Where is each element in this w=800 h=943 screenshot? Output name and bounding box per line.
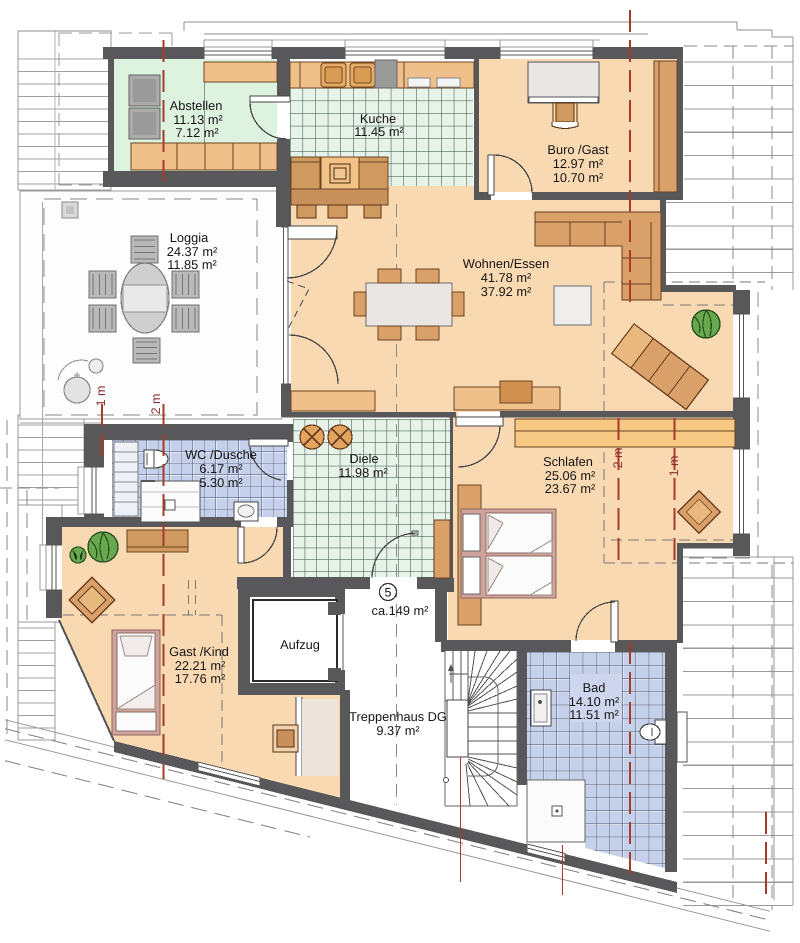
svg-text:11.51 m²: 11.51 m²: [569, 707, 619, 722]
svg-text:Gast /Kind: Gast /Kind: [169, 644, 229, 659]
svg-text:Loggia: Loggia: [170, 230, 209, 245]
svg-text:Wohnen/Essen: Wohnen/Essen: [463, 256, 550, 271]
svg-text:12.97 m²: 12.97 m²: [553, 156, 604, 171]
svg-text:2 m: 2 m: [149, 394, 163, 415]
svg-text:ca.149 m²: ca.149 m²: [372, 603, 430, 618]
svg-text:2 m: 2 m: [611, 448, 625, 469]
svg-text:Schlafen: Schlafen: [543, 454, 593, 469]
svg-text:1 m: 1 m: [94, 386, 108, 407]
svg-text:37.92 m²: 37.92 m²: [481, 284, 532, 299]
svg-text:Bad: Bad: [583, 680, 606, 695]
svg-text:23.67 m²: 23.67 m²: [545, 481, 596, 496]
svg-text:1 m: 1 m: [667, 456, 681, 477]
svg-text:9.37 m²: 9.37 m²: [376, 723, 420, 738]
svg-text:6.17 m²: 6.17 m²: [199, 461, 243, 476]
svg-text:7.12 m²: 7.12 m²: [175, 125, 219, 140]
svg-text:5.30 m²: 5.30 m²: [199, 475, 243, 490]
svg-text:Abstellen: Abstellen: [170, 98, 223, 113]
svg-text:11.85 m²: 11.85 m²: [167, 257, 217, 272]
svg-text:Treppenhaus DG: Treppenhaus DG: [349, 709, 447, 724]
svg-text:WC /Dusche: WC /Dusche: [185, 447, 257, 462]
svg-text:Aufzug: Aufzug: [280, 637, 320, 652]
svg-text:11.45 m²: 11.45 m²: [354, 124, 404, 139]
svg-text:11.98 m²: 11.98 m²: [338, 465, 388, 480]
svg-text:5: 5: [385, 586, 392, 600]
svg-text:17.76 m²: 17.76 m²: [175, 671, 226, 686]
svg-text:Diele: Diele: [349, 451, 378, 466]
svg-text:10.70 m²: 10.70 m²: [553, 170, 604, 185]
svg-text:Buro /Gast: Buro /Gast: [547, 142, 609, 157]
svg-text:41.78 m²: 41.78 m²: [481, 270, 532, 285]
